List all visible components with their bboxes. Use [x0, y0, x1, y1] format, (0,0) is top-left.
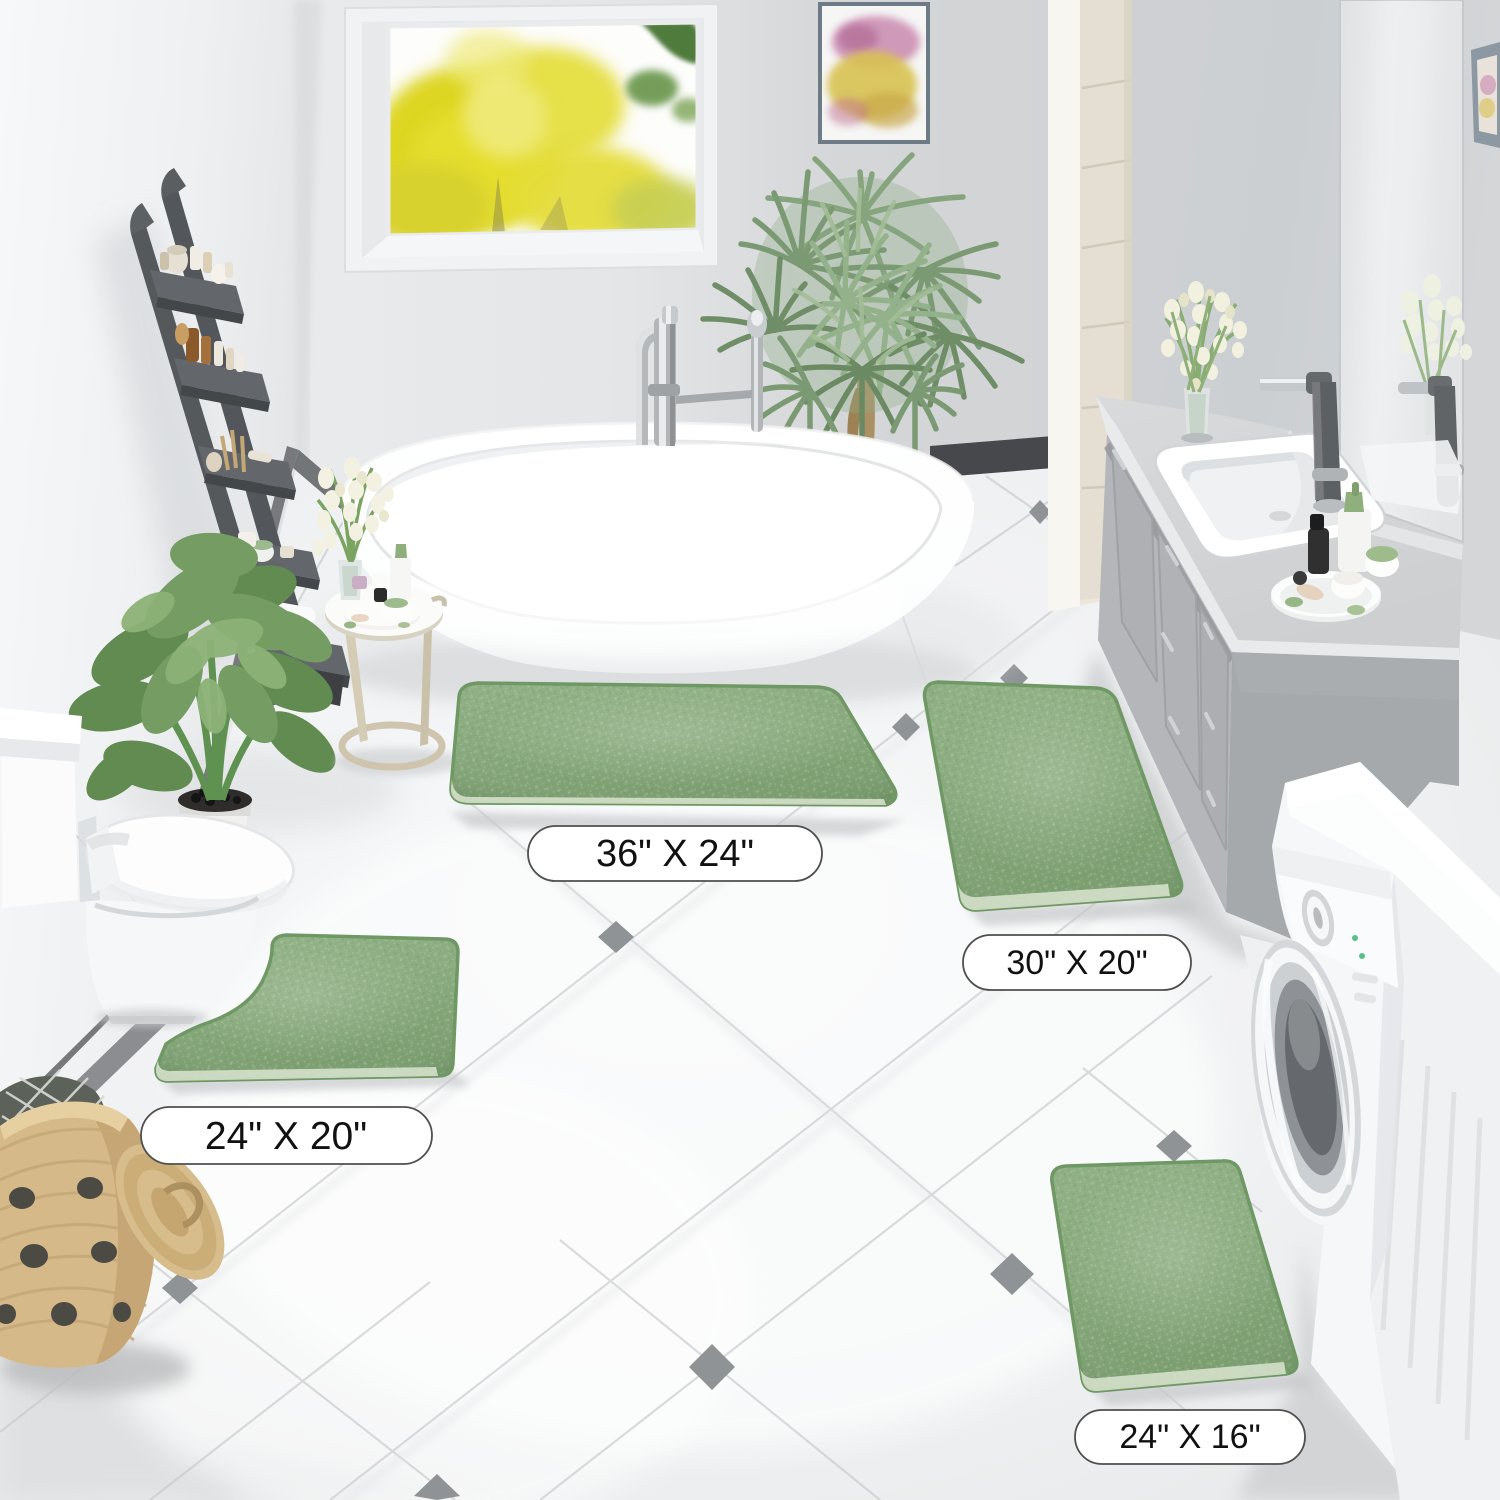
svg-text:24" X 20": 24" X 20" [205, 1115, 367, 1158]
svg-text:36" X 24": 36" X 24" [596, 833, 754, 875]
svg-text:30" X 20": 30" X 20" [1006, 944, 1147, 982]
svg-text:24" X 16": 24" X 16" [1119, 1418, 1260, 1456]
